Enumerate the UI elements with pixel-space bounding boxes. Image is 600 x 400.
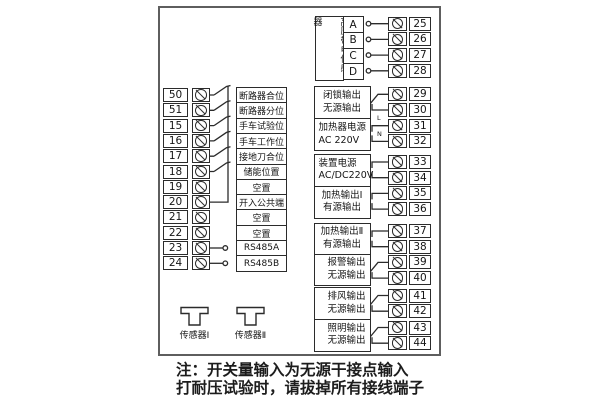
- right-terminal-38: 38: [409, 240, 431, 254]
- right-screw-33: [388, 155, 407, 169]
- screw-icon: [195, 166, 207, 178]
- screw-icon: [195, 242, 207, 254]
- hv-channel-B: B: [343, 32, 364, 49]
- output-label-line2: 无源输出: [327, 335, 365, 348]
- output-label-line2: 无源输出: [327, 270, 365, 283]
- note-line-1: 注：开关量输入为无源干接点输入: [176, 361, 409, 379]
- input-label-0: 断路器合位: [236, 87, 287, 104]
- output-label-line2: 无源输出: [323, 103, 361, 116]
- right-screw-39: [388, 255, 407, 269]
- output-label-41-42: 排风输出 无源输出: [314, 287, 371, 320]
- sensor-1-shape: [181, 308, 208, 326]
- output-label-line1: 闭锁输出: [323, 90, 361, 103]
- left-screw-19: [192, 180, 210, 194]
- left-terminal-20: 20: [163, 195, 188, 209]
- left-screw-21: [192, 210, 210, 224]
- left-terminal-50: 50: [163, 88, 188, 102]
- screw-icon: [195, 120, 207, 132]
- right-screw-44: [388, 336, 407, 350]
- hv-sensor-label-box: 高压带电传感器: [315, 16, 344, 81]
- left-screw-17: [192, 149, 210, 163]
- output-label-37-38: 加热输出Ⅱ 有源输出: [314, 223, 371, 256]
- right-terminal-35: 35: [409, 186, 431, 200]
- right-terminal-34: 34: [409, 171, 431, 185]
- output-label-line2: 有源输出: [323, 239, 361, 252]
- output-label-33-34: 装置电源 AC/DC220V: [314, 154, 371, 188]
- input-label-10: RS485A: [236, 240, 287, 257]
- input-label-4: 接地刀合位: [236, 148, 287, 165]
- sensor-1-label: 传感器Ⅰ: [171, 328, 218, 341]
- output-label-line1: 加热器电源: [319, 122, 367, 135]
- right-terminal-29: 29: [409, 87, 431, 101]
- rs485b-node: [223, 261, 228, 266]
- right-screw-36: [388, 202, 407, 216]
- right-terminal-41: 41: [409, 289, 431, 303]
- right-screw-32: [388, 134, 407, 148]
- right-screw-41: [388, 289, 407, 303]
- output-label-line1: 加热输出Ⅱ: [321, 226, 364, 239]
- left-terminal-24: 24: [163, 256, 188, 270]
- right-screw-26: [388, 32, 407, 46]
- screw-icon: [392, 290, 404, 302]
- output-label-line1: 装置电源: [319, 158, 357, 171]
- output-label-line2: AC/DC220V: [319, 170, 374, 183]
- right-screw-31: [388, 119, 407, 133]
- output-label-39-40: 报警输出 无源输出: [314, 254, 371, 287]
- left-terminal-22: 22: [163, 226, 188, 240]
- hv-channel-C: C: [343, 48, 364, 65]
- left-screw-51: [192, 103, 210, 117]
- left-screw-22: [192, 226, 210, 240]
- right-screw-42: [388, 304, 407, 318]
- right-screw-28: [388, 64, 407, 78]
- right-screw-40: [388, 271, 407, 285]
- screw-icon: [392, 136, 404, 148]
- input-label-1: 断路器分位: [236, 102, 287, 119]
- output-label-29-30: 闭锁输出 无源输出: [314, 86, 371, 120]
- left-screw-16: [192, 134, 210, 148]
- output-label-31-32: 加热器电源 AC 220V: [314, 118, 371, 152]
- wiring-diagram-page: 50 51 15 16 17 18 19 20 21 22 23 24 断路器合…: [0, 0, 600, 400]
- screw-icon: [195, 135, 207, 147]
- screw-icon: [392, 322, 404, 334]
- right-terminal-44: 44: [409, 336, 431, 350]
- screw-icon: [392, 172, 404, 184]
- screw-icon: [392, 34, 404, 46]
- screw-icon: [392, 65, 404, 77]
- power-wire: [372, 231, 388, 247]
- screw-icon: [392, 49, 404, 61]
- sensor-2-shape: [237, 308, 264, 326]
- screw-icon: [195, 181, 207, 193]
- rs485a-node: [223, 246, 228, 251]
- right-screw-37: [388, 224, 407, 238]
- right-terminal-42: 42: [409, 304, 431, 318]
- output-label-35-36: 加热输出Ⅰ 有源输出: [314, 186, 371, 220]
- right-terminal-40: 40: [409, 271, 431, 285]
- screw-icon: [392, 257, 404, 269]
- screw-icon: [195, 89, 207, 101]
- left-terminal-16: 16: [163, 134, 188, 148]
- right-terminal-39: 39: [409, 255, 431, 269]
- right-terminal-27: 27: [409, 48, 431, 62]
- left-screw-50: [192, 88, 210, 102]
- screw-icon: [392, 337, 404, 349]
- screw-icon: [392, 104, 404, 116]
- screw-icon: [392, 203, 404, 215]
- output-label-line2: 有源输出: [323, 202, 361, 215]
- right-screw-43: [388, 321, 407, 335]
- output-label-line1: 照明输出: [327, 323, 365, 336]
- channel-node: [366, 69, 371, 74]
- right-screw-38: [388, 240, 407, 254]
- screw-icon: [392, 89, 404, 101]
- screw-icon: [392, 18, 404, 30]
- wire-label-N: N: [377, 131, 382, 138]
- wiring-lines: [0, 0, 600, 400]
- left-screw-24: [192, 256, 210, 270]
- screw-icon: [392, 188, 404, 200]
- screw-icon: [195, 150, 207, 162]
- screw-icon: [392, 241, 404, 253]
- output-label-line1: 排风输出: [327, 291, 365, 304]
- right-terminal-26: 26: [409, 32, 431, 46]
- output-label-43-44: 照明输出 无源输出: [314, 319, 371, 352]
- right-terminal-33: 33: [409, 155, 431, 169]
- input-label-7: 开入公共端: [236, 194, 287, 211]
- channel-node: [366, 37, 371, 42]
- screw-icon: [392, 156, 404, 168]
- input-label-9: 空置: [236, 225, 287, 242]
- screw-icon: [195, 196, 207, 208]
- right-terminal-32: 32: [409, 134, 431, 148]
- right-terminal-36: 36: [409, 202, 431, 216]
- input-label-11: RS485B: [236, 255, 287, 272]
- right-terminal-37: 37: [409, 224, 431, 238]
- input-label-2: 手车试验位: [236, 118, 287, 135]
- power-wire: [372, 162, 388, 178]
- screw-icon: [392, 225, 404, 237]
- left-terminal-51: 51: [163, 103, 188, 117]
- right-terminal-31: 31: [409, 119, 431, 133]
- screw-icon: [195, 258, 207, 270]
- right-terminal-28: 28: [409, 64, 431, 78]
- channel-node: [366, 53, 371, 58]
- left-terminal-23: 23: [163, 241, 188, 255]
- sensor-2-label: 传感器Ⅱ: [227, 328, 274, 341]
- channel-node: [366, 21, 371, 26]
- hv-channel-D: D: [343, 63, 364, 80]
- left-screw-18: [192, 165, 210, 179]
- right-terminal-43: 43: [409, 321, 431, 335]
- screw-icon: [195, 105, 207, 117]
- input-label-5: 储能位置: [236, 164, 287, 181]
- left-screw-15: [192, 119, 210, 133]
- output-label-line1: 加热输出Ⅰ: [322, 190, 363, 203]
- power-wire: [372, 193, 388, 209]
- output-label-line1: 报警输出: [327, 257, 365, 270]
- screw-icon: [392, 305, 404, 317]
- left-terminal-18: 18: [163, 165, 188, 179]
- wire-label-L: L: [377, 115, 381, 122]
- screw-icon: [392, 272, 404, 284]
- hv-channel-A: A: [343, 16, 364, 33]
- note-line-2: 打耐压试验时，请拔掉所有接线端子: [176, 379, 424, 397]
- input-label-3: 手车工作位: [236, 133, 287, 150]
- right-screw-27: [388, 48, 407, 62]
- contact-symbol: [371, 94, 389, 110]
- right-terminal-30: 30: [409, 103, 431, 117]
- screw-icon: [195, 212, 207, 224]
- right-screw-30: [388, 103, 407, 117]
- common-bus: [210, 87, 228, 203]
- input-label-8: 空置: [236, 209, 287, 226]
- right-screw-34: [388, 171, 407, 185]
- contact-symbol: [371, 262, 389, 278]
- contact-symbol: [371, 296, 389, 312]
- input-label-6: 空置: [236, 179, 287, 196]
- right-screw-29: [388, 87, 407, 101]
- output-label-line2: 无源输出: [327, 304, 365, 317]
- screw-icon: [195, 227, 207, 239]
- left-screw-20: [192, 195, 210, 209]
- right-screw-35: [388, 186, 407, 200]
- left-terminal-15: 15: [163, 119, 188, 133]
- right-terminal-25: 25: [409, 17, 431, 31]
- left-screw-23: [192, 241, 210, 255]
- contact-symbol: [371, 328, 389, 344]
- left-terminal-19: 19: [163, 180, 188, 194]
- left-terminal-17: 17: [163, 149, 188, 163]
- right-screw-25: [388, 17, 407, 31]
- left-terminal-21: 21: [163, 210, 188, 224]
- output-label-line2: AC 220V: [319, 135, 360, 148]
- screw-icon: [392, 120, 404, 132]
